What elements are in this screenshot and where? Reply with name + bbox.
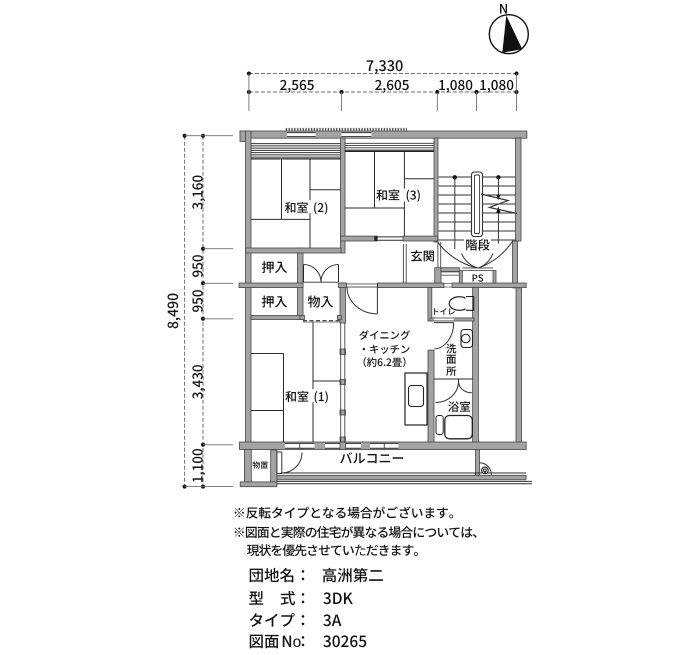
svg-text:：: ：	[295, 587, 311, 609]
svg-text:：: ：	[295, 564, 311, 586]
svg-text:2,565: 2,565	[280, 74, 315, 94]
svg-text:物入: 物入	[307, 291, 333, 310]
svg-text:高洲第二: 高洲第二	[322, 564, 384, 586]
svg-text:バルコニー: バルコニー	[339, 448, 404, 467]
svg-text:所: 所	[446, 364, 457, 379]
svg-text:N: N	[499, 0, 509, 18]
svg-text:（約6.2畳）: （約6.2畳）	[357, 354, 413, 369]
svg-text:3A: 3A	[323, 609, 342, 631]
svg-text:2,605: 2,605	[375, 74, 410, 94]
svg-text:浴室: 浴室	[448, 399, 471, 415]
svg-text:式: 式	[280, 587, 296, 609]
svg-text:玄関: 玄関	[410, 246, 435, 264]
svg-text:※反転タイプとなる場合がございます。: ※反転タイプとなる場合がございます。	[233, 503, 462, 522]
svg-text:型: 型	[249, 587, 265, 609]
svg-text:タイプ: タイプ	[249, 609, 296, 631]
svg-text:950: 950	[187, 254, 207, 277]
svg-text:950: 950	[187, 289, 207, 312]
svg-text:物置: 物置	[252, 460, 268, 471]
svg-text:：: ：	[295, 630, 311, 650]
svg-text:7,330: 7,330	[366, 55, 403, 76]
svg-text:ダイニング: ダイニング	[359, 327, 410, 342]
svg-text:図面: 図面	[249, 630, 280, 650]
svg-text:和室: 和室	[376, 187, 400, 204]
svg-text:階段: 階段	[465, 235, 490, 253]
svg-text:1,080: 1,080	[479, 74, 514, 94]
svg-text:1,080: 1,080	[438, 74, 473, 94]
svg-text:PS: PS	[472, 271, 484, 285]
svg-text:：: ：	[295, 609, 311, 631]
svg-text:押入: 押入	[261, 257, 287, 276]
svg-text:1,100: 1,100	[187, 448, 207, 483]
svg-text:(2): (2)	[313, 199, 328, 216]
svg-text:30265: 30265	[323, 630, 367, 650]
svg-text:押入: 押入	[261, 291, 287, 310]
svg-text:8,490: 8,490	[163, 293, 183, 329]
svg-text:和室: 和室	[284, 199, 308, 216]
svg-text:(3): (3)	[406, 187, 421, 204]
svg-text:3,160: 3,160	[187, 174, 207, 209]
svg-text:団地名: 団地名	[249, 564, 296, 586]
svg-text:現状を優先させていただきます。: 現状を優先させていただきます。	[247, 540, 426, 559]
svg-text:(1): (1)	[314, 388, 329, 405]
svg-text:3,430: 3,430	[187, 364, 207, 399]
svg-text:和室: 和室	[285, 388, 309, 405]
svg-text:3DK: 3DK	[323, 587, 354, 609]
svg-text:トイレ: トイレ	[432, 307, 456, 318]
svg-text:※図面と実際の住宅が異なる場合については、: ※図面と実際の住宅が異なる場合については、	[233, 522, 484, 541]
